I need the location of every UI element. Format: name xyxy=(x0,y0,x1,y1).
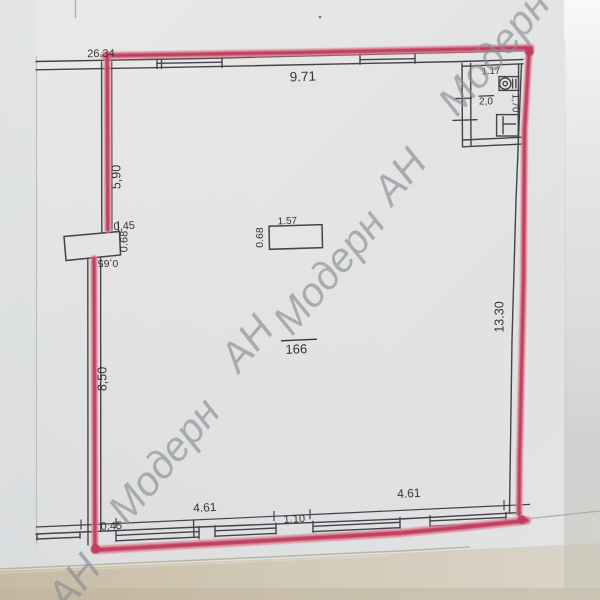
svg-text:1.10: 1.10 xyxy=(283,513,305,526)
svg-text:26.34: 26.34 xyxy=(87,48,115,60)
svg-text:13.30: 13.30 xyxy=(493,301,507,332)
svg-text:9.71: 9.71 xyxy=(289,69,316,85)
svg-text:8,50: 8,50 xyxy=(96,367,110,391)
svg-text:0.68: 0.68 xyxy=(119,231,131,252)
svg-text:1.57: 1.57 xyxy=(277,216,297,228)
svg-text:5,90: 5,90 xyxy=(110,165,124,189)
svg-text:4.61: 4.61 xyxy=(397,486,421,501)
svg-text:1,70: 1,70 xyxy=(510,94,521,113)
svg-text:0.68: 0.68 xyxy=(254,227,266,248)
svg-text:0,65: 0,65 xyxy=(98,257,119,269)
svg-text:166: 166 xyxy=(285,341,307,357)
svg-text:4.61: 4.61 xyxy=(193,500,217,515)
svg-text:0,45: 0,45 xyxy=(100,520,122,533)
